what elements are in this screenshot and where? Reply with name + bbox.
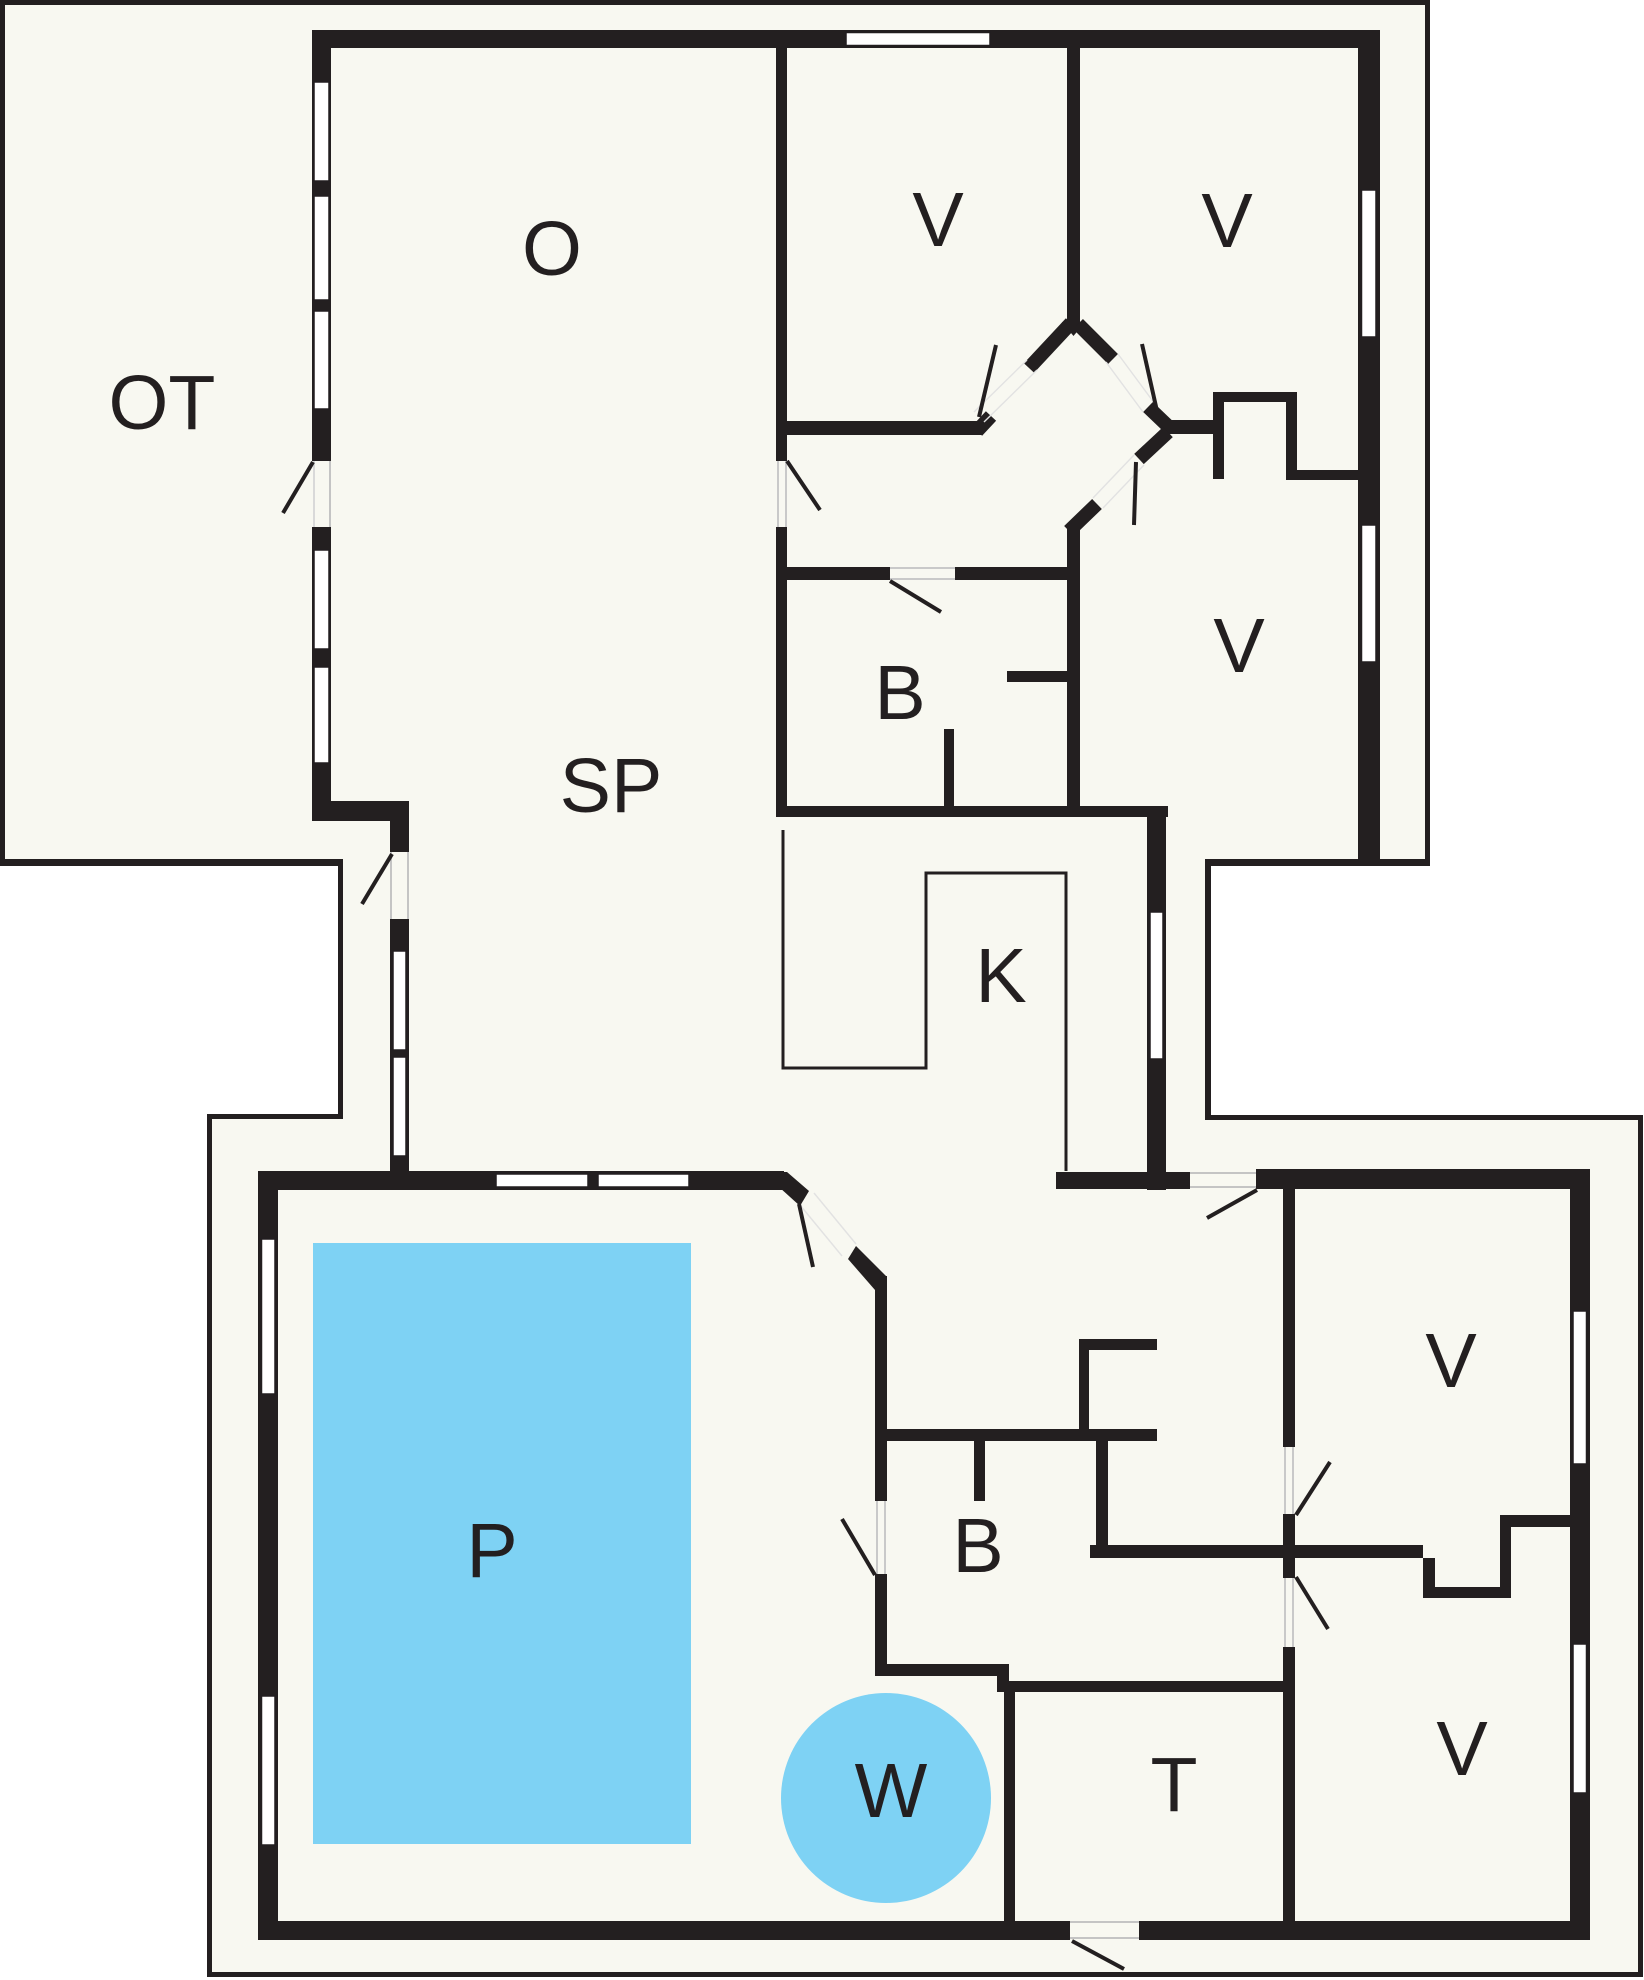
svg-text:V: V bbox=[1213, 603, 1265, 689]
svg-text:OT: OT bbox=[109, 360, 216, 446]
svg-text:V: V bbox=[912, 177, 964, 263]
svg-text:W: W bbox=[855, 1748, 928, 1834]
svg-text:V: V bbox=[1425, 1318, 1477, 1404]
svg-text:T: T bbox=[1150, 1742, 1197, 1828]
svg-text:O: O bbox=[522, 206, 582, 292]
svg-text:K: K bbox=[975, 933, 1026, 1019]
svg-text:V: V bbox=[1201, 178, 1253, 264]
svg-text:SP: SP bbox=[560, 743, 663, 829]
svg-text:P: P bbox=[466, 1508, 517, 1594]
svg-text:B: B bbox=[952, 1503, 1003, 1589]
svg-text:V: V bbox=[1436, 1706, 1488, 1792]
svg-text:B: B bbox=[874, 650, 925, 736]
